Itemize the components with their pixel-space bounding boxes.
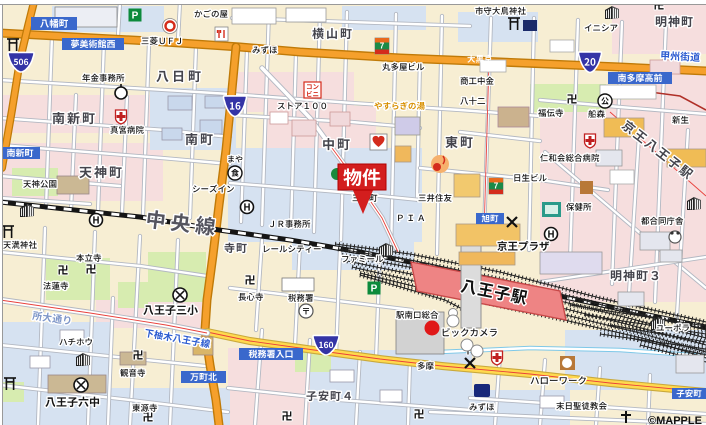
svg-text:7: 7 — [380, 42, 385, 51]
svg-text:©MAPPLE: ©MAPPLE — [648, 415, 702, 425]
svg-text:P: P — [132, 11, 139, 22]
svg-text:P: P — [371, 284, 378, 295]
svg-text:7: 7 — [494, 182, 499, 191]
